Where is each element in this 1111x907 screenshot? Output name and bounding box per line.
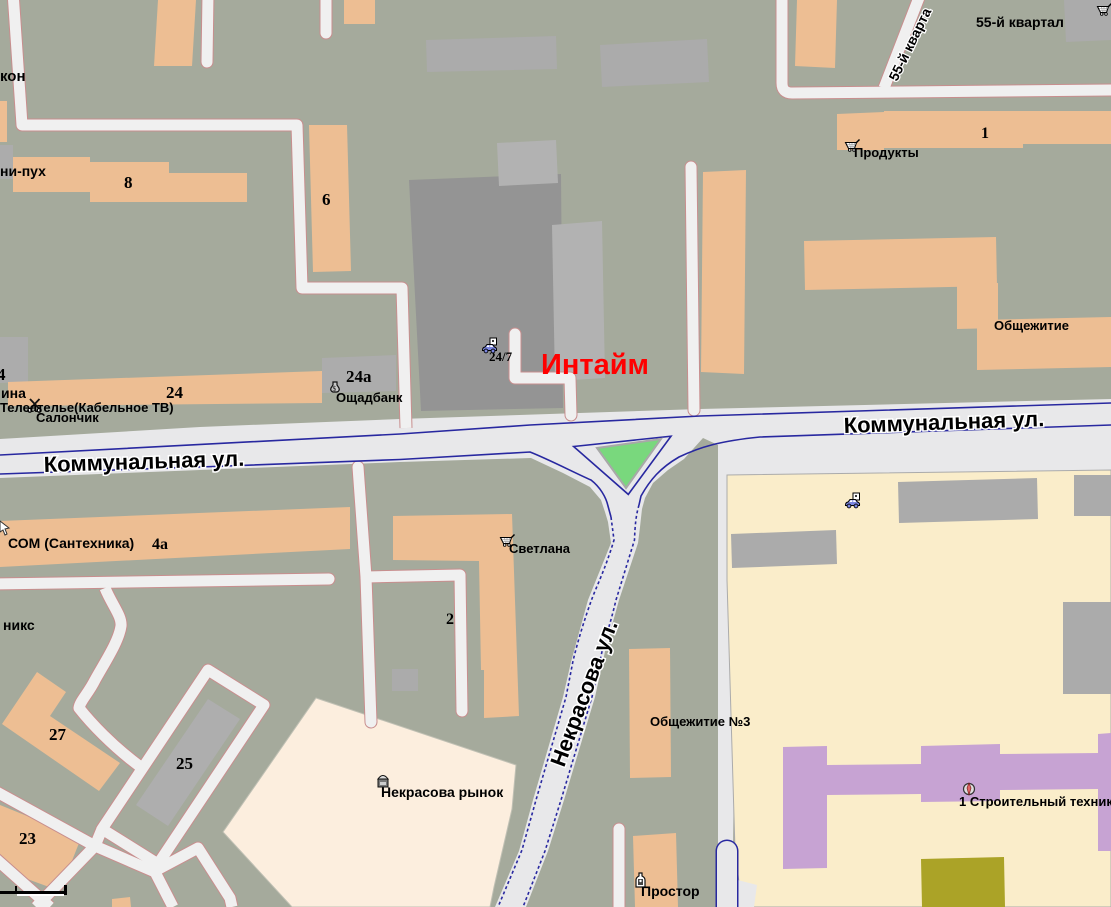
svg-text:1 Строительный техникум: 1 Строительный техникум [959, 794, 1111, 809]
svg-text:Некрасова рынок: Некрасова рынок [381, 784, 504, 800]
svg-text:2: 2 [446, 611, 454, 628]
svg-text:Общежитие: Общежитие [994, 318, 1069, 333]
svg-text:55-й квартал: 55-й квартал [976, 14, 1064, 30]
svg-text:1: 1 [981, 125, 989, 142]
svg-text:6: 6 [322, 190, 331, 209]
svg-text:кон: кон [0, 68, 26, 85]
svg-text:27: 27 [49, 725, 67, 744]
svg-text:Салончик: Салончик [36, 410, 99, 425]
svg-text:Продукты: Продукты [854, 145, 919, 160]
svg-text:4а: 4а [152, 536, 168, 553]
svg-text:4: 4 [0, 365, 6, 384]
svg-text:СОМ (Сантехника): СОМ (Сантехника) [8, 535, 134, 551]
svg-text:Светлана: Светлана [509, 541, 571, 556]
svg-text:Общежитие №3: Общежитие №3 [650, 714, 750, 729]
svg-text:Простор: Простор [641, 883, 700, 899]
svg-text:24/7: 24/7 [489, 349, 513, 364]
svg-text:25: 25 [176, 754, 193, 773]
svg-text:ина: ина [1, 385, 26, 401]
svg-text:23: 23 [19, 829, 36, 848]
svg-text:никс: никс [3, 617, 35, 633]
svg-text:8: 8 [124, 173, 133, 192]
svg-text:Интайм: Интайм [541, 349, 649, 381]
svg-text:24а: 24а [346, 367, 372, 386]
svg-text:ни-пух: ни-пух [0, 163, 46, 179]
svg-text:Ощадбанк: Ощадбанк [336, 390, 403, 405]
